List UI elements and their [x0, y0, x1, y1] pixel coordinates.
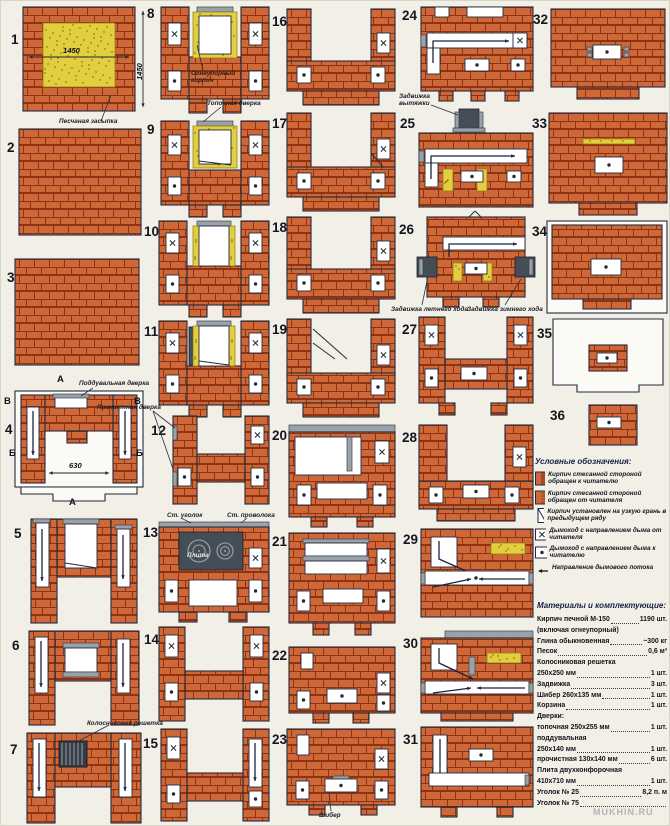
- course-drawing: [31, 519, 139, 627]
- materials-list: Кирпич печной М-1501190 шт.(включая огне…: [537, 615, 667, 809]
- material-value: 1 шт.: [651, 669, 667, 680]
- course-number: 29: [403, 533, 418, 547]
- course-diagram-22: 22: [289, 647, 395, 727]
- course-diagram-16: 16: [287, 9, 395, 105]
- course-diagram-12: 12: [173, 416, 269, 504]
- course-diagram-25: 25: [419, 109, 533, 207]
- dotted-leader: [611, 731, 650, 732]
- material-line: Шибер 260х135 мм1 шт.: [537, 691, 667, 702]
- course-drawing: [287, 113, 395, 211]
- legend-item-label: Кирпич стесанной стороной обращен от чит…: [548, 490, 668, 504]
- course-diagram-20: 20: [289, 425, 395, 527]
- course-drawing: [161, 121, 269, 219]
- material-line: поддувальная: [537, 734, 667, 745]
- material-label: Уголок № 25: [537, 788, 579, 799]
- course-drawing: [287, 217, 395, 313]
- material-value: 1 шт.: [651, 745, 667, 756]
- material-line: Уголок № 258,2 п. м: [537, 788, 667, 799]
- course-number: 25: [400, 117, 415, 131]
- annotation-label: Поддувальная дверка: [79, 381, 149, 388]
- dotted-leader: [580, 796, 641, 797]
- dotted-leader: [610, 644, 642, 645]
- annotation-label: Прочистная дверка: [97, 405, 161, 412]
- material-label: Глина обыкновенная: [537, 637, 609, 648]
- material-line: Колосниковая решетка: [537, 658, 667, 669]
- course-number: 24: [402, 9, 417, 23]
- course-diagram-17: 17: [287, 113, 395, 211]
- course-drawing: [29, 631, 139, 725]
- dotted-leader: [577, 785, 650, 786]
- course-drawing: [547, 221, 667, 313]
- course-number: 20: [272, 429, 287, 443]
- material-line: Корзина1 шт.: [537, 701, 667, 712]
- course-number: 21: [272, 535, 287, 549]
- course-number: 33: [532, 117, 547, 131]
- course-diagram-34: 34: [547, 221, 667, 313]
- material-label: поддувальная: [537, 734, 587, 745]
- course-number: 14: [144, 633, 159, 647]
- legend-item-label: Дымоход с направлением дыма к читателю: [550, 545, 668, 559]
- material-label: 410х710 мм: [537, 777, 576, 788]
- annotation-label: Огнеупорный кирпич: [191, 71, 235, 85]
- dotted-leader: [602, 698, 650, 699]
- brick-hatched-icon: [535, 471, 545, 486]
- course-diagram-24: 24: [421, 7, 533, 101]
- course-number: 18: [272, 221, 287, 235]
- course-diagram-18: 18: [287, 217, 395, 313]
- course-drawing: [159, 627, 269, 721]
- course-number: 28: [402, 431, 417, 445]
- course-number: 31: [403, 733, 418, 747]
- legend-item: Кирпич установлен на узкую грань в преды…: [535, 508, 668, 523]
- material-value: 8,2 п. м: [642, 788, 667, 799]
- course-diagram-23: 23: [287, 729, 395, 821]
- course-diagram-28: 28: [419, 425, 533, 521]
- course-number: 3: [7, 271, 15, 285]
- course-number: 7: [10, 743, 18, 757]
- dotted-leader: [566, 709, 650, 710]
- materials-panel: Материалы и комплектующие: Кирпич печной…: [537, 601, 667, 809]
- material-line: прочистная 130х140 мм6 шт.: [537, 755, 667, 766]
- course-number: 16: [272, 15, 287, 29]
- material-label: Кирпич печной М-150: [537, 615, 610, 626]
- course-drawing: [417, 211, 535, 311]
- annotation-label: 1450: [136, 63, 144, 80]
- course-diagram-2: 2: [19, 129, 141, 237]
- course-drawing: [173, 416, 269, 504]
- course-drawing: [159, 508, 269, 622]
- course-drawing: [161, 729, 269, 821]
- stove-masonry-plan: 1234567891011121314151617181920212223242…: [0, 0, 670, 826]
- course-number: 8: [147, 7, 155, 21]
- legend-item: Кирпич стесанной стороной обращен к чита…: [535, 471, 668, 486]
- dotted-leader: [577, 677, 650, 678]
- material-value: 1 шт.: [651, 777, 667, 788]
- material-label: Уголок № 75: [537, 799, 579, 810]
- annotation-label: Б: [9, 449, 16, 459]
- course-drawing: [421, 529, 533, 625]
- course-drawing: [553, 319, 663, 401]
- material-line: Задвижка3 шт.: [537, 680, 667, 691]
- material-value: 6 шт.: [651, 755, 667, 766]
- course-number: 9: [147, 123, 155, 137]
- course-drawing: [27, 733, 141, 823]
- course-drawing: [15, 259, 139, 367]
- course-number: 19: [272, 323, 287, 337]
- material-value: ~300 кг: [643, 637, 667, 648]
- course-number: 10: [144, 225, 159, 239]
- annotation-label: 1450: [63, 47, 80, 55]
- course-diagram-35: 35: [553, 319, 663, 401]
- annotation-label: Б: [136, 449, 143, 459]
- course-number: 32: [533, 13, 548, 27]
- course-diagram-15: 15: [161, 729, 269, 821]
- course-drawing: [419, 109, 533, 207]
- annotation-label: Задвижка летнего хода: [391, 307, 468, 314]
- annotation-label: А: [57, 375, 64, 385]
- course-diagram-36: 36: [571, 405, 655, 449]
- course-diagram-27: 27: [419, 317, 533, 417]
- course-drawing: [159, 321, 269, 417]
- course-number: 15: [143, 737, 158, 751]
- legend-items: Кирпич стесанной стороной обращен к чита…: [535, 471, 668, 579]
- annotation-label: Плита: [187, 553, 209, 560]
- material-line: 410х710 мм1 шт.: [537, 777, 667, 788]
- course-diagram-11: 11: [159, 321, 269, 417]
- material-label: 250х140 мм: [537, 745, 576, 756]
- course-number: 22: [272, 649, 287, 663]
- legend-item-label: Дымоход с направлением дыма от читателя: [549, 527, 668, 541]
- course-number: 1: [11, 33, 19, 47]
- course-diagram-32: 32: [551, 9, 665, 101]
- dotted-leader: [571, 688, 650, 689]
- course-diagram-26: 26: [417, 211, 535, 311]
- course-diagram-31: 31: [421, 727, 533, 821]
- course-drawing: [419, 425, 533, 521]
- material-label: Шибер 260х135 мм: [537, 691, 601, 702]
- course-number: 17: [272, 117, 287, 131]
- legend-item-label: Кирпич установлен на узкую грань в преды…: [547, 508, 668, 522]
- material-line: топочная 250х255 мм1 шт.: [537, 723, 667, 734]
- course-drawing: [421, 631, 533, 721]
- material-label: Корзина: [537, 701, 565, 712]
- annotation-label: Колосниковая решетка: [87, 721, 163, 728]
- course-diagram-21: 21: [289, 533, 395, 641]
- course-drawing: [421, 7, 533, 101]
- brick-dotted-icon: [535, 490, 545, 505]
- material-line: 250х250 мм1 шт.: [537, 669, 667, 680]
- course-drawing: [289, 425, 395, 527]
- material-line: Плита двухконфорочная: [537, 766, 667, 777]
- material-value: 3 шт.: [651, 680, 667, 691]
- course-drawing: [289, 647, 395, 727]
- legend-item: Направление дымового потока: [535, 564, 668, 579]
- course-number: 30: [403, 637, 418, 651]
- brick-edge-icon: [535, 508, 544, 523]
- course-diagram-10: 10: [159, 221, 269, 317]
- flue-toward-icon: [535, 545, 547, 560]
- material-label: прочистная 130х140 мм: [537, 755, 618, 766]
- course-diagram-9: 9: [161, 121, 269, 219]
- course-drawing: [419, 317, 533, 417]
- legend-title: Условные обозначения:: [535, 457, 668, 466]
- course-drawing: [551, 9, 665, 101]
- material-label: топочная 250х255 мм: [537, 723, 610, 734]
- dotted-leader: [577, 752, 650, 753]
- material-line: (включая огнеупорный): [537, 626, 667, 637]
- course-number: 13: [143, 526, 158, 540]
- material-value: 0,6 м³: [648, 647, 667, 658]
- legend-item: Дымоход с направлением дыма от читателя: [535, 527, 668, 542]
- course-drawing: [19, 129, 141, 237]
- dotted-leader: [611, 623, 639, 624]
- annotation-label: 630: [69, 462, 82, 470]
- course-diagram-5: 5: [31, 519, 139, 627]
- materials-title: Материалы и комплектующие:: [537, 601, 667, 610]
- annotation-label: Песчаная засыпка: [59, 119, 117, 126]
- material-label: 250х250 мм: [537, 669, 576, 680]
- flue-away-icon: [535, 527, 546, 542]
- course-number: 2: [7, 141, 15, 155]
- material-label: Задвижка: [537, 680, 570, 691]
- material-line: Кирпич печной М-1501190 шт.: [537, 615, 667, 626]
- course-drawing: [287, 9, 395, 105]
- course-number: 6: [12, 639, 20, 653]
- course-drawing: [421, 727, 533, 821]
- course-diagram-30: 30: [421, 631, 533, 721]
- watermark: MUKHIN.RU: [593, 807, 654, 817]
- material-value: 1 шт.: [651, 691, 667, 702]
- course-diagram-19: 19: [287, 319, 395, 417]
- course-drawing: [287, 319, 395, 417]
- material-label: Колосниковая решетка: [537, 658, 616, 669]
- annotation-label: Задвижка вытяжки: [399, 94, 430, 108]
- dotted-leader: [619, 763, 650, 764]
- legend-item-label: Кирпич стесанной стороной обращен к чита…: [548, 471, 668, 485]
- annotation-label: В: [4, 397, 11, 407]
- course-diagram-14: 14: [159, 627, 269, 721]
- course-diagram-7: 7: [27, 733, 141, 823]
- course-number: 26: [399, 223, 414, 237]
- course-number: 4: [5, 423, 13, 437]
- course-diagram-29: 29: [421, 529, 533, 625]
- legend-panel: Условные обозначения: Кирпич стесанной с…: [535, 457, 668, 582]
- course-number: 36: [550, 409, 565, 423]
- dotted-leader: [558, 655, 647, 656]
- course-drawing: [549, 113, 667, 217]
- course-drawing: [571, 405, 655, 449]
- material-value: 1 шт.: [651, 723, 667, 734]
- course-number: 27: [402, 323, 417, 337]
- annotation-label: Шибер: [319, 813, 341, 820]
- material-label: Плита двухконфорочная: [537, 766, 622, 777]
- course-number: 23: [272, 733, 287, 747]
- material-value: 1190 шт.: [640, 615, 667, 626]
- course-number: 12: [151, 424, 166, 438]
- annotation-label: Ст. проволока: [227, 513, 275, 520]
- material-label: (включая огнеупорный): [537, 626, 619, 637]
- material-line: Песок0,6 м³: [537, 647, 667, 658]
- course-number: 34: [532, 225, 547, 239]
- course-diagram-13: 13: [159, 508, 269, 622]
- material-value: 1 шт.: [651, 701, 667, 712]
- legend-item-label: Направление дымового потока: [552, 564, 653, 571]
- flow-arrow-icon: [535, 564, 549, 579]
- course-number: 11: [144, 325, 158, 339]
- material-line: 250х140 мм1 шт.: [537, 745, 667, 756]
- course-drawing: [159, 221, 269, 317]
- course-drawing: [287, 729, 395, 821]
- material-label: Дверки:: [537, 712, 564, 723]
- course-number: 5: [14, 527, 22, 541]
- annotation-label: А: [69, 498, 76, 508]
- course-diagram-3: 3: [15, 259, 139, 367]
- course-drawing: [289, 533, 395, 641]
- annotation-label: Ст. уголок: [167, 513, 203, 520]
- course-diagram-6: 6: [29, 631, 139, 725]
- material-label: Песок: [537, 647, 557, 658]
- legend-item: Кирпич стесанной стороной обращен от чит…: [535, 490, 668, 505]
- course-diagram-33: 33: [549, 113, 667, 217]
- annotation-label: Задвижка зимнего хода: [467, 307, 543, 314]
- material-line: Дверки:: [537, 712, 667, 723]
- course-number: 35: [537, 327, 552, 341]
- annotation-label: Топочная дверка: [207, 101, 261, 108]
- legend-item: Дымоход с направлением дыма к читателю: [535, 545, 668, 560]
- material-line: Глина обыкновенная~300 кг: [537, 637, 667, 648]
